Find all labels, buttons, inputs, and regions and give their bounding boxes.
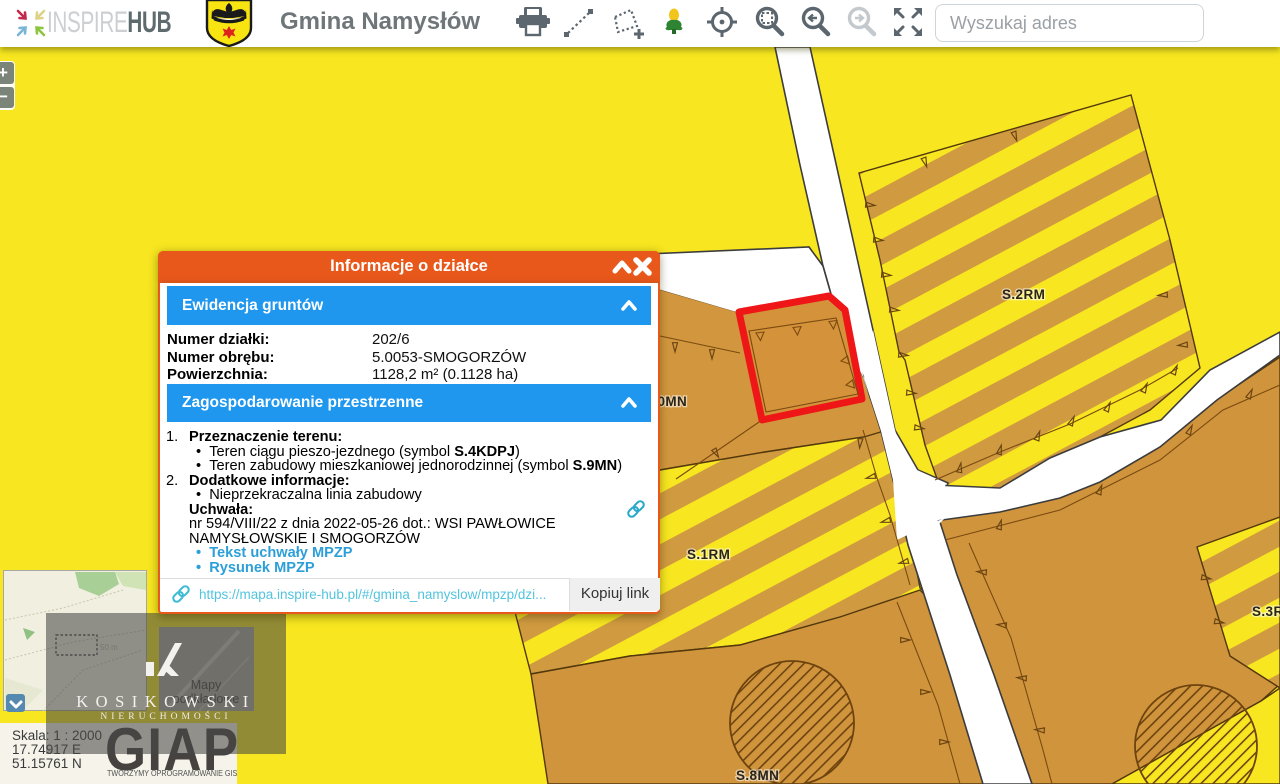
svg-text:S.3RM: S.3RM	[1252, 604, 1280, 619]
svg-text:S.1RM: S.1RM	[687, 547, 730, 562]
svg-text:S.8MN: S.8MN	[736, 768, 779, 783]
svg-text:S.2RM: S.2RM	[1002, 287, 1045, 302]
